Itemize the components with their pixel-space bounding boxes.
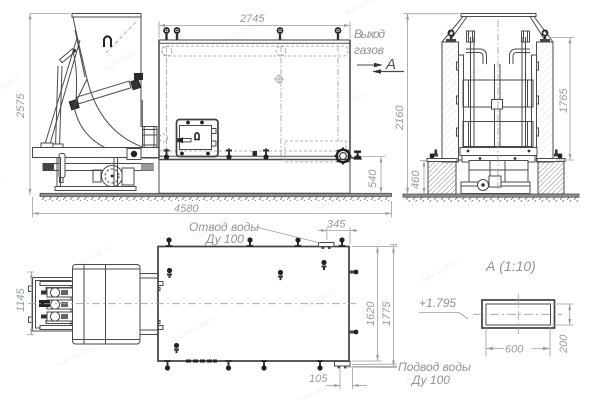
svg-text:1775: 1775 [381, 301, 393, 326]
svg-text:газов: газов [354, 43, 384, 57]
svg-text:2160: 2160 [394, 105, 406, 131]
svg-text:Ду 100: Ду 100 [410, 373, 450, 387]
svg-text:105: 105 [309, 373, 328, 385]
svg-text:+1.795: +1.795 [419, 296, 456, 310]
svg-text:460: 460 [410, 170, 422, 189]
svg-text:Выход: Выход [354, 27, 385, 41]
svg-text:1145: 1145 [15, 287, 27, 312]
svg-text:200: 200 [558, 334, 570, 354]
svg-text:4580: 4580 [174, 203, 199, 215]
svg-text:Ду 100: Ду 100 [204, 232, 244, 246]
svg-text:600: 600 [505, 344, 524, 356]
svg-text:Подвод воды: Подвод воды [398, 360, 471, 374]
svg-text:A: A [385, 56, 396, 73]
svg-text:2575: 2575 [15, 93, 27, 119]
svg-text:2745: 2745 [239, 13, 265, 25]
svg-text:1620: 1620 [365, 301, 377, 326]
svg-text:А (1:10): А (1:10) [485, 258, 536, 274]
svg-text:1765: 1765 [558, 88, 570, 113]
svg-text:540: 540 [367, 169, 379, 188]
svg-text:345: 345 [327, 219, 346, 231]
